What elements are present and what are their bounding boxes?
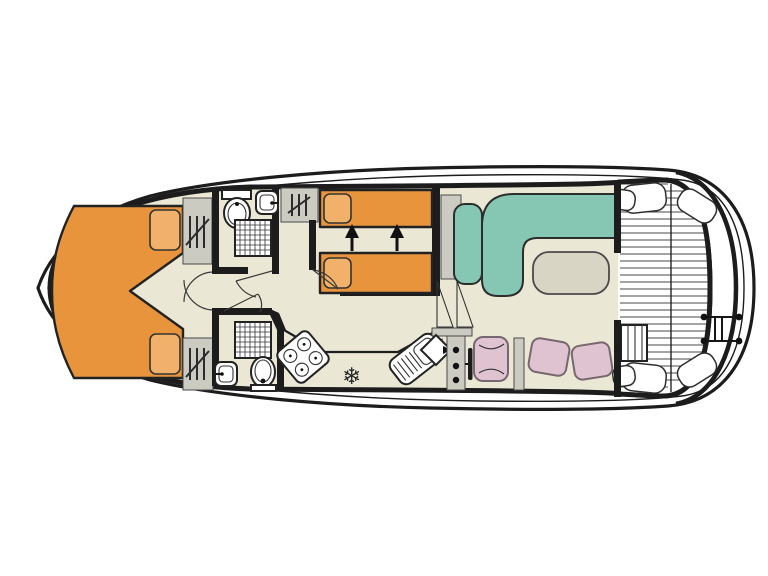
wall-segment	[614, 320, 621, 397]
cleat-dot	[701, 338, 708, 345]
washbasin-icon	[215, 362, 237, 386]
floor-plan-canvas: ❄	[0, 0, 768, 576]
wall-segment	[212, 267, 248, 274]
wardrobe	[281, 188, 318, 222]
instrument-dot	[453, 363, 459, 369]
instrument-dot	[453, 377, 459, 383]
partition-post	[514, 338, 524, 390]
stool	[527, 337, 570, 377]
bed-pillow	[324, 258, 351, 288]
cistern	[251, 385, 276, 391]
deck-steps	[621, 325, 647, 361]
shower-icon	[235, 220, 271, 256]
bed-pillow	[150, 334, 180, 374]
wall-segment	[614, 181, 621, 253]
fridge-snowflake-icon: ❄	[342, 364, 361, 390]
wall-segment	[212, 308, 272, 315]
wardrobe	[183, 338, 213, 390]
cleat-dot	[736, 314, 743, 321]
wall-segment	[432, 188, 440, 296]
bed-pillow	[150, 210, 180, 250]
bed-pillow	[324, 194, 351, 223]
cleat-dot	[701, 314, 708, 321]
shower-icon	[235, 322, 271, 358]
boat-floor-plan: ❄	[0, 0, 768, 576]
wall-segment	[212, 188, 219, 274]
stool	[571, 341, 614, 381]
helm-seat	[474, 337, 508, 381]
cleat-dot	[736, 338, 743, 345]
saloon-table	[533, 252, 609, 294]
wardrobe	[183, 198, 212, 264]
sofa-chaise	[454, 204, 482, 284]
instrument-dot	[453, 347, 459, 353]
washbasin-icon	[256, 191, 278, 214]
hanger-icon	[288, 194, 310, 216]
wall-segment	[309, 220, 316, 270]
